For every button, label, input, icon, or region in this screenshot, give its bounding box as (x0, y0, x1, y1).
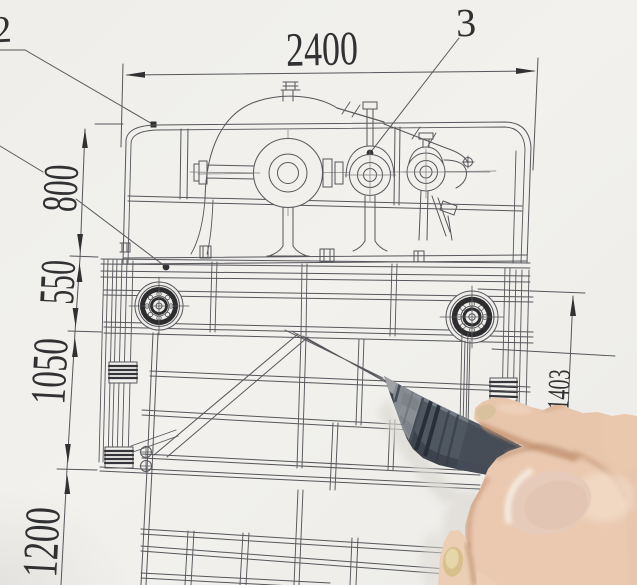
svg-text:2: 2 (0, 9, 13, 52)
svg-text:1050: 1050 (19, 337, 78, 406)
svg-text:800: 800 (31, 163, 89, 213)
svg-text:550: 550 (28, 259, 86, 306)
svg-text:1403: 1403 (540, 369, 577, 411)
svg-text:2400: 2400 (285, 22, 358, 77)
svg-text:1200: 1200 (11, 506, 71, 579)
